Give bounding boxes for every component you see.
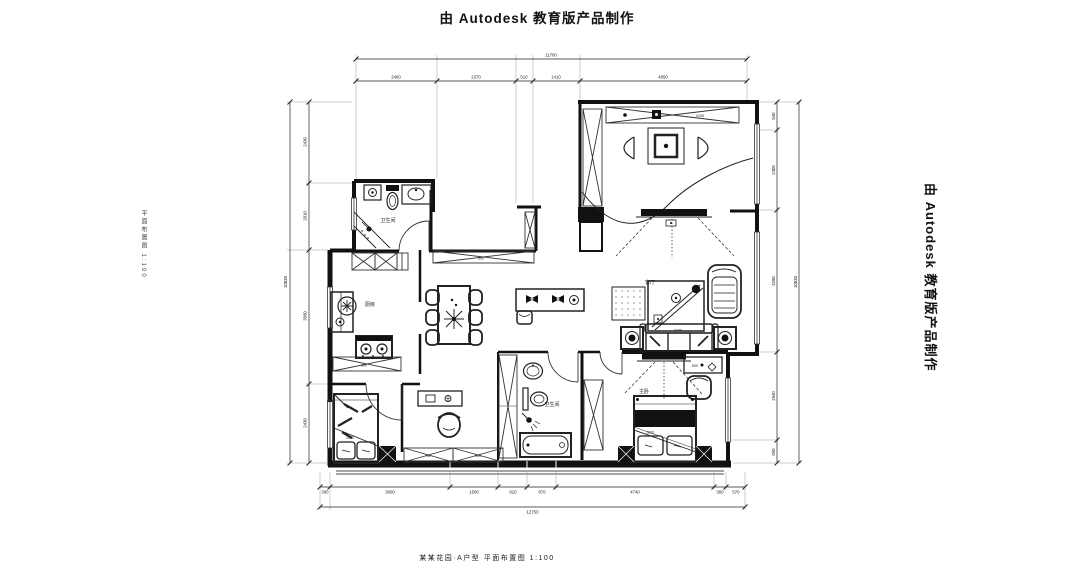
tea-table bbox=[648, 128, 684, 164]
kitchen-counter bbox=[333, 357, 401, 371]
bathroom2-room bbox=[520, 363, 571, 457]
dim-left-seg3: 2430 bbox=[303, 418, 308, 428]
corridor-strip-cabinet bbox=[525, 212, 535, 248]
stool bbox=[517, 311, 532, 324]
living-room bbox=[612, 265, 741, 352]
dim-right-overall: 10830 bbox=[793, 275, 798, 288]
bed1 bbox=[334, 394, 378, 463]
cad-viewport: 由 Autodesk 教育版产品制作 由 Autodesk 教育版产品制作 某某… bbox=[0, 0, 1074, 576]
side-table-right bbox=[714, 327, 736, 349]
bathroom1-room bbox=[354, 185, 431, 248]
dim-top-seg3: 1410 bbox=[551, 75, 561, 80]
dim-top-seg2: 510 bbox=[520, 75, 528, 80]
armchair bbox=[708, 265, 741, 318]
bathtub bbox=[520, 433, 571, 457]
sideboard bbox=[516, 289, 584, 311]
nightstand2-right bbox=[696, 446, 712, 462]
mark-bed2: 1800 bbox=[646, 431, 654, 435]
dim-right-seg1: 2400 bbox=[771, 165, 776, 175]
stove bbox=[356, 336, 392, 358]
dim-right-seg4: 690 bbox=[771, 448, 776, 456]
window-bedroom1 bbox=[328, 400, 333, 448]
dim-left-overall: 10830 bbox=[283, 275, 288, 288]
window-bedroom2 bbox=[726, 378, 731, 442]
dim-top-seg0: 2460 bbox=[391, 75, 401, 80]
lounge-top-cabinet bbox=[606, 107, 739, 123]
dim-top-seg4: 4950 bbox=[658, 75, 668, 80]
washer bbox=[364, 185, 381, 200]
dim-right: 840 2400 4260 2640 690 10830 bbox=[771, 100, 802, 466]
mark-shoe-cabinet: 350 bbox=[478, 257, 484, 261]
dim-left: 10830 2430 2010 3960 2430 bbox=[283, 100, 312, 466]
window-lounge-right bbox=[755, 124, 760, 204]
dim-bottom-seg5: 4740 bbox=[630, 490, 640, 495]
door-bath2 bbox=[548, 352, 578, 382]
lounge-chair-right bbox=[698, 137, 708, 159]
study-cabinet bbox=[404, 448, 503, 462]
basin1 bbox=[402, 185, 431, 204]
dim-bottom-seg3: 810 bbox=[509, 490, 517, 495]
mark-sofa: 2400 bbox=[674, 329, 682, 333]
dining-area bbox=[426, 286, 584, 345]
basin2 bbox=[524, 363, 543, 379]
table-plant bbox=[444, 299, 464, 329]
mark-kitchen-counter: 600 bbox=[361, 364, 367, 368]
dim-bottom-seg6: 360 bbox=[716, 490, 724, 495]
bed2 bbox=[634, 396, 696, 462]
bedroom2-room bbox=[618, 353, 722, 462]
floor-plan: 卫生间 厨房 客厅 卫生间 主卧 350 600 780 900 4150 15… bbox=[0, 0, 1074, 576]
dim-bottom-seg7: 570 bbox=[732, 490, 740, 495]
label-living: 客厅 bbox=[645, 279, 655, 286]
mark-study-cabinet-right: 900 bbox=[475, 454, 481, 458]
kitchen-upper-cabinet bbox=[352, 253, 408, 270]
tv-living bbox=[616, 209, 734, 258]
dim-right-seg2: 4260 bbox=[771, 276, 776, 286]
dim-top-overall: 11700 bbox=[545, 53, 557, 58]
door-bedroom1 bbox=[366, 384, 402, 420]
desk-chair bbox=[438, 413, 460, 437]
dim-top: 11700 2460 2370 510 1410 4950 bbox=[354, 53, 750, 84]
dim-bottom-seg1: 3600 bbox=[385, 490, 395, 495]
shower-head2 bbox=[522, 413, 540, 431]
door-bedroom2 bbox=[600, 352, 622, 374]
kitchen-room bbox=[331, 292, 392, 358]
dim-right-seg0: 840 bbox=[771, 112, 776, 120]
label-bedroom2: 主卧 bbox=[639, 388, 649, 395]
toilet1 bbox=[386, 185, 399, 210]
furniture-marks: 350 600 780 900 4150 1500 1800 2400 600 bbox=[346, 114, 704, 458]
dim-right-seg3: 2640 bbox=[771, 391, 776, 401]
lounge-wardrobe bbox=[583, 109, 602, 206]
dim-bottom-seg4: 870 bbox=[538, 490, 546, 495]
dim-bottom-seg0: 300 bbox=[321, 490, 329, 495]
nightstand1 bbox=[379, 446, 396, 462]
label-bath2: 卫生间 bbox=[544, 401, 559, 408]
bedroom1-room bbox=[334, 391, 462, 463]
door-bath1 bbox=[399, 221, 429, 251]
lounge-room bbox=[582, 128, 753, 258]
dim-left-seg0: 2430 bbox=[303, 137, 308, 147]
dim-bottom: 300 3600 1500 810 870 4740 360 570 12750 bbox=[318, 485, 748, 515]
dim-bottom-seg2: 1500 bbox=[469, 490, 479, 495]
nightstand2-left bbox=[618, 446, 634, 462]
mark-dresser: 600 bbox=[692, 364, 698, 368]
dim-bottom-overall: 12750 bbox=[527, 510, 540, 515]
mark-study-cabinet-left: 780 bbox=[425, 454, 431, 458]
lounge-chair-left bbox=[624, 137, 634, 159]
kitchen-sink bbox=[331, 292, 356, 332]
window-living-right bbox=[755, 232, 760, 344]
label-bath1: 卫生间 bbox=[380, 217, 395, 224]
dim-left-seg2: 3960 bbox=[303, 311, 308, 321]
bedroom2-wardrobe bbox=[584, 380, 603, 450]
dresser bbox=[684, 357, 722, 373]
bath2-tall-cabinet bbox=[499, 355, 517, 458]
cabinets bbox=[333, 107, 739, 462]
mark-bed1: 1500 bbox=[346, 436, 354, 440]
label-kitchen: 厨房 bbox=[365, 301, 375, 308]
dim-left-seg1: 2010 bbox=[303, 211, 308, 221]
mark-top-cabinet: 4150 bbox=[696, 114, 704, 118]
dim-top-seg1: 2370 bbox=[471, 75, 481, 80]
rug bbox=[612, 287, 645, 320]
desk bbox=[418, 391, 462, 406]
